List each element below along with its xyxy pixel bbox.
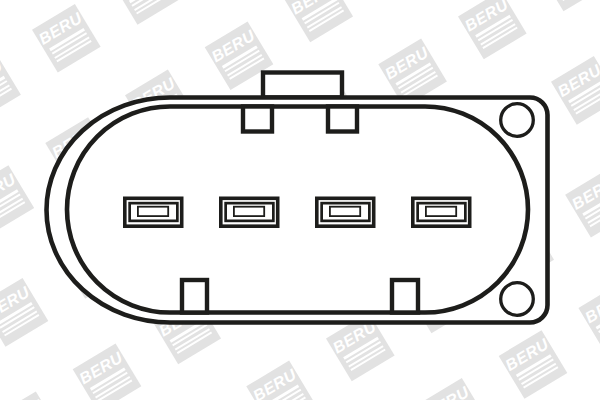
key-tab-bottom-left — [182, 280, 207, 313]
mounting-tab-top — [263, 73, 342, 98]
terminal-pin-3 — [317, 198, 374, 226]
key-tab-bottom-right — [392, 280, 418, 313]
terminal-pin-1 — [125, 198, 182, 226]
key-tab-top-left — [243, 107, 272, 132]
terminal-pin-2 — [221, 198, 278, 226]
diagram-canvas: BERUBERUBERUBERUBERUBERUBERUBERUBERUBERU… — [0, 0, 600, 400]
screw-hole-top-right — [501, 104, 534, 137]
terminal-pin-4 — [413, 198, 470, 226]
connector-drawing — [0, 0, 600, 400]
screw-hole-bottom-right — [501, 283, 534, 316]
key-tab-top-right — [328, 107, 357, 132]
